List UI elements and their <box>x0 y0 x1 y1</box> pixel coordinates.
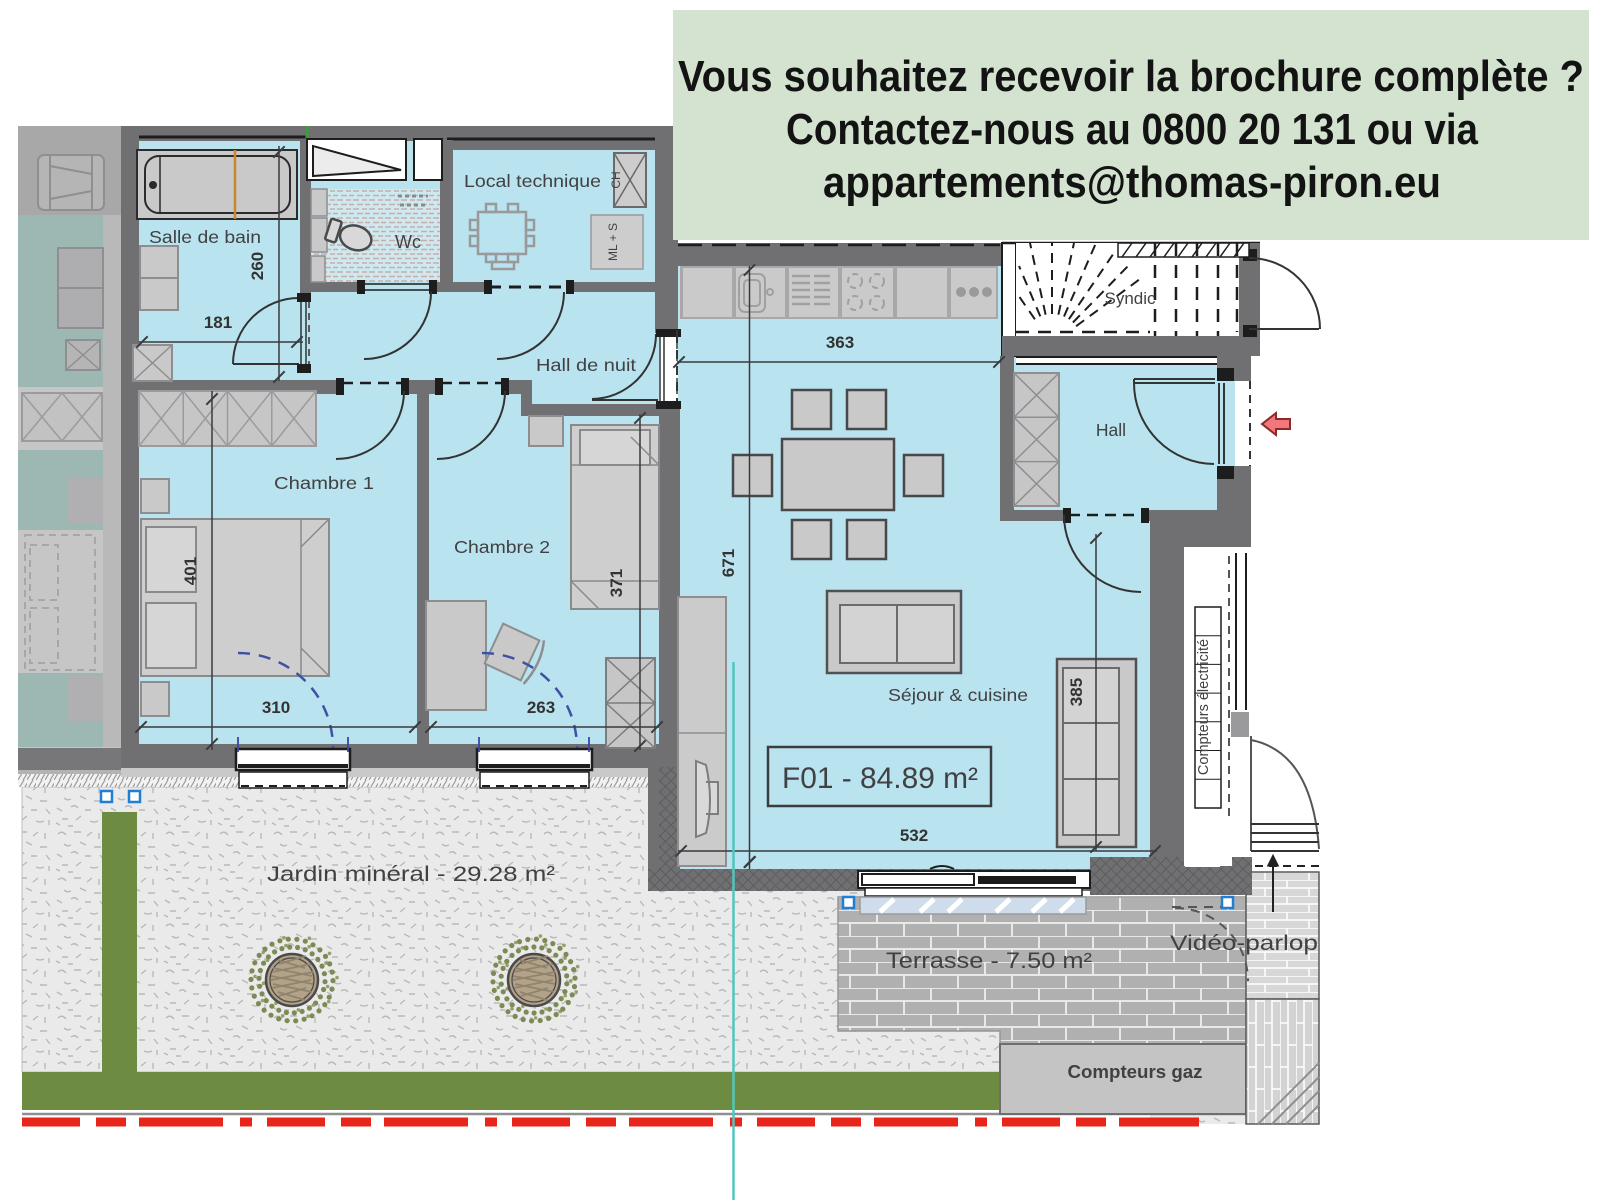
svg-text:appartements@thomas-piron.eu: appartements@thomas-piron.eu <box>823 158 1441 207</box>
svg-text:Jardin minéral - 29.28 m²: Jardin minéral - 29.28 m² <box>267 863 555 886</box>
svg-text:Chambre 1: Chambre 1 <box>274 473 374 493</box>
svg-text:Terrasse - 7.50 m²: Terrasse - 7.50 m² <box>886 948 1092 973</box>
svg-text:263: 263 <box>527 698 555 717</box>
svg-text:Chambre 2: Chambre 2 <box>454 537 550 557</box>
svg-text:Salle de bain: Salle de bain <box>149 227 261 247</box>
svg-text:385: 385 <box>1067 678 1086 706</box>
svg-text:Vous souhaitez recevoir la bro: Vous souhaitez recevoir la brochure comp… <box>678 52 1584 101</box>
svg-text:Compteurs électricité: Compteurs électricité <box>1196 639 1212 775</box>
svg-text:Hall de nuit: Hall de nuit <box>536 355 636 375</box>
svg-text:CH: CH <box>609 171 623 188</box>
svg-text:Contactez-nous au 0800 20 131: Contactez-nous au 0800 20 131 ou via <box>786 105 1478 154</box>
svg-text:Vidéo-parlop: Vidéo-parlop <box>1170 932 1318 955</box>
svg-text:Wc: Wc <box>395 232 421 252</box>
svg-text:ML + S: ML + S <box>606 223 620 261</box>
svg-text:363: 363 <box>826 333 854 352</box>
svg-text:371: 371 <box>607 569 626 597</box>
svg-text:Hall: Hall <box>1096 420 1126 440</box>
svg-text:F01 - 84.89 m²: F01 - 84.89 m² <box>782 762 978 795</box>
svg-text:Compteurs gaz: Compteurs gaz <box>1068 1062 1203 1082</box>
svg-text:310: 310 <box>262 698 290 717</box>
svg-text:181: 181 <box>204 313 232 332</box>
svg-text:260: 260 <box>248 252 267 280</box>
svg-text:401: 401 <box>181 557 200 585</box>
svg-text:Séjour & cuisine: Séjour & cuisine <box>888 685 1028 705</box>
svg-text:Syndic: Syndic <box>1104 289 1156 308</box>
svg-text:532: 532 <box>900 826 928 845</box>
svg-text:671: 671 <box>719 549 738 577</box>
svg-text:Local technique: Local technique <box>464 171 601 191</box>
